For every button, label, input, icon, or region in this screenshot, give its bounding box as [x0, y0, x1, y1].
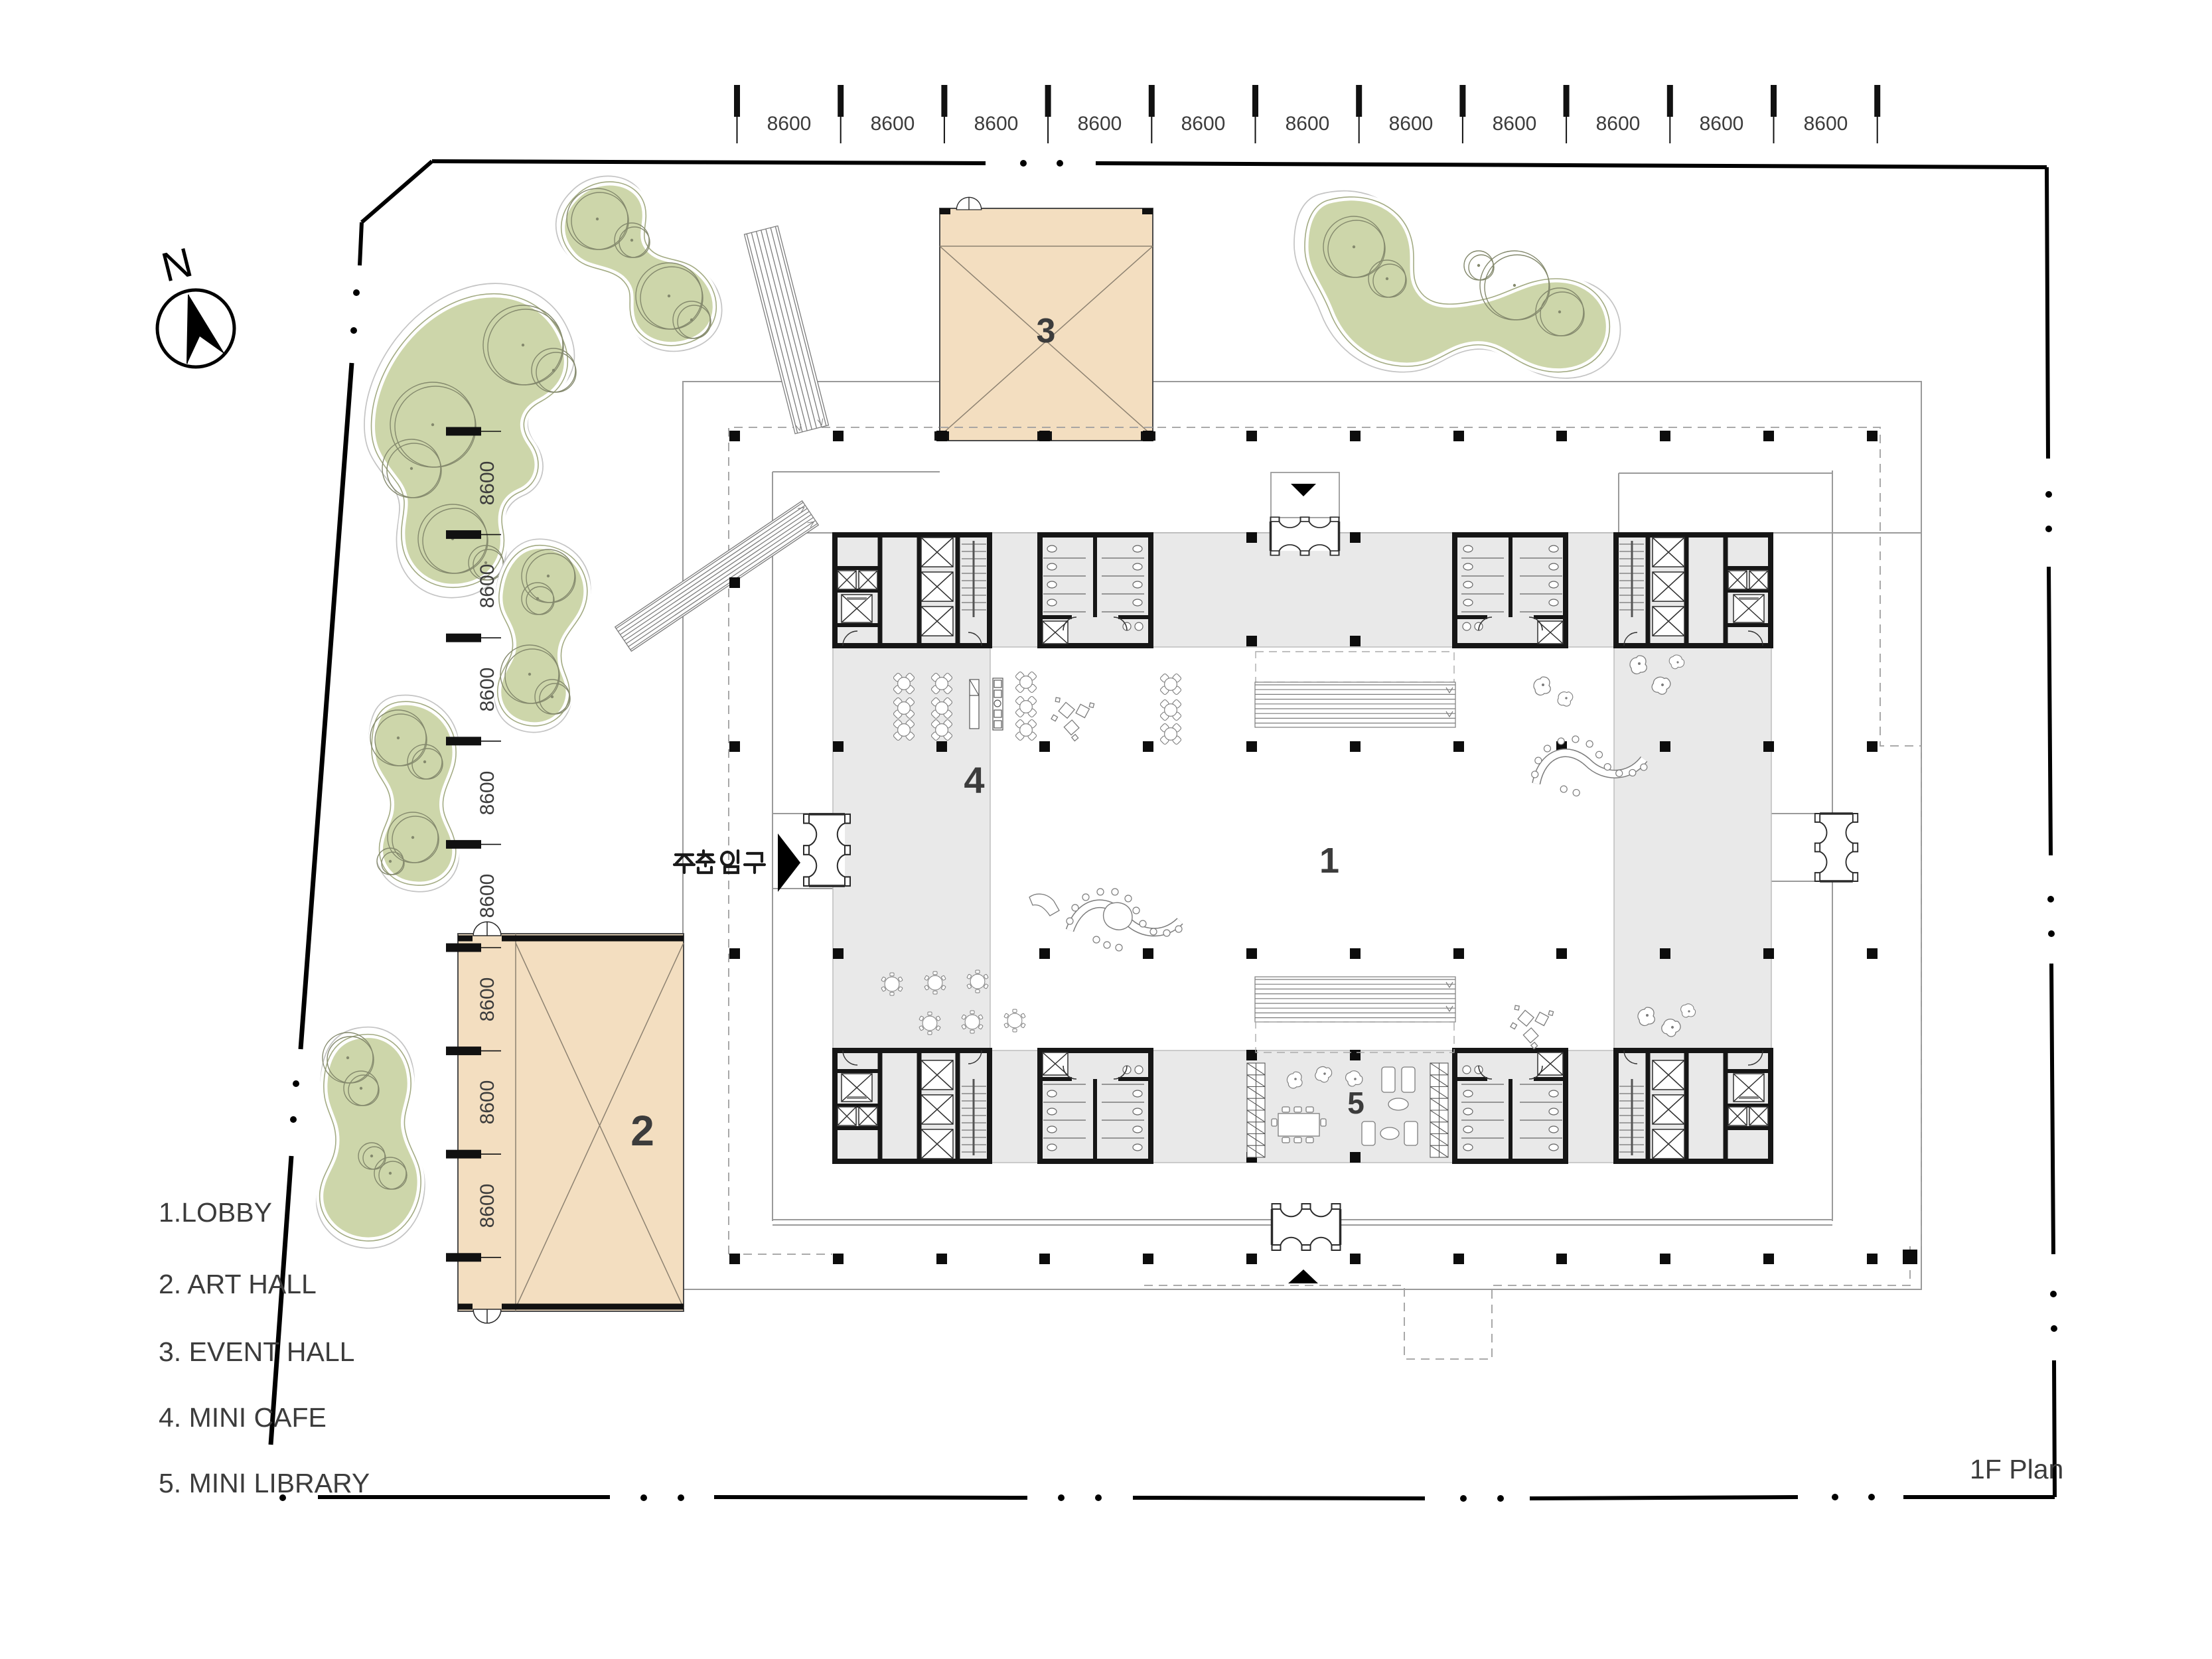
- svg-text:8600: 8600: [974, 113, 1019, 135]
- svg-text:8600: 8600: [477, 1184, 498, 1228]
- svg-text:1.LOBBY: 1.LOBBY: [159, 1197, 272, 1228]
- svg-text:2: 2: [630, 1107, 654, 1155]
- svg-text:8600: 8600: [1804, 113, 1848, 135]
- svg-text:8600: 8600: [477, 977, 498, 1022]
- svg-text:5: 5: [1347, 1086, 1364, 1120]
- svg-text:1F Plan: 1F Plan: [1970, 1454, 2063, 1484]
- svg-text:8600: 8600: [1389, 113, 1434, 135]
- svg-text:8600: 8600: [477, 564, 498, 609]
- svg-text:8600: 8600: [1700, 113, 1744, 135]
- svg-text:4. MINI CAFE: 4. MINI CAFE: [159, 1402, 327, 1433]
- svg-text:4: 4: [964, 759, 984, 801]
- svg-text:8600: 8600: [1286, 113, 1330, 135]
- svg-text:8600: 8600: [477, 874, 498, 918]
- svg-text:8600: 8600: [1181, 113, 1226, 135]
- svg-text:8600: 8600: [767, 113, 812, 135]
- svg-text:8600: 8600: [477, 668, 498, 712]
- svg-text:8600: 8600: [477, 771, 498, 816]
- svg-text:8600: 8600: [1493, 113, 1537, 135]
- svg-text:8600: 8600: [871, 113, 915, 135]
- svg-text:8600: 8600: [477, 461, 498, 506]
- svg-text:8600: 8600: [1078, 113, 1122, 135]
- svg-text:3: 3: [1037, 312, 1056, 350]
- svg-text:5. MINI LIBRARY: 5. MINI LIBRARY: [159, 1468, 370, 1498]
- svg-text:1: 1: [1319, 841, 1339, 881]
- svg-text:8600: 8600: [1596, 113, 1641, 135]
- svg-text:3. EVENT HALL: 3. EVENT HALL: [159, 1336, 355, 1367]
- svg-text:2. ART HALL: 2. ART HALL: [159, 1269, 317, 1299]
- svg-text:8600: 8600: [477, 1080, 498, 1125]
